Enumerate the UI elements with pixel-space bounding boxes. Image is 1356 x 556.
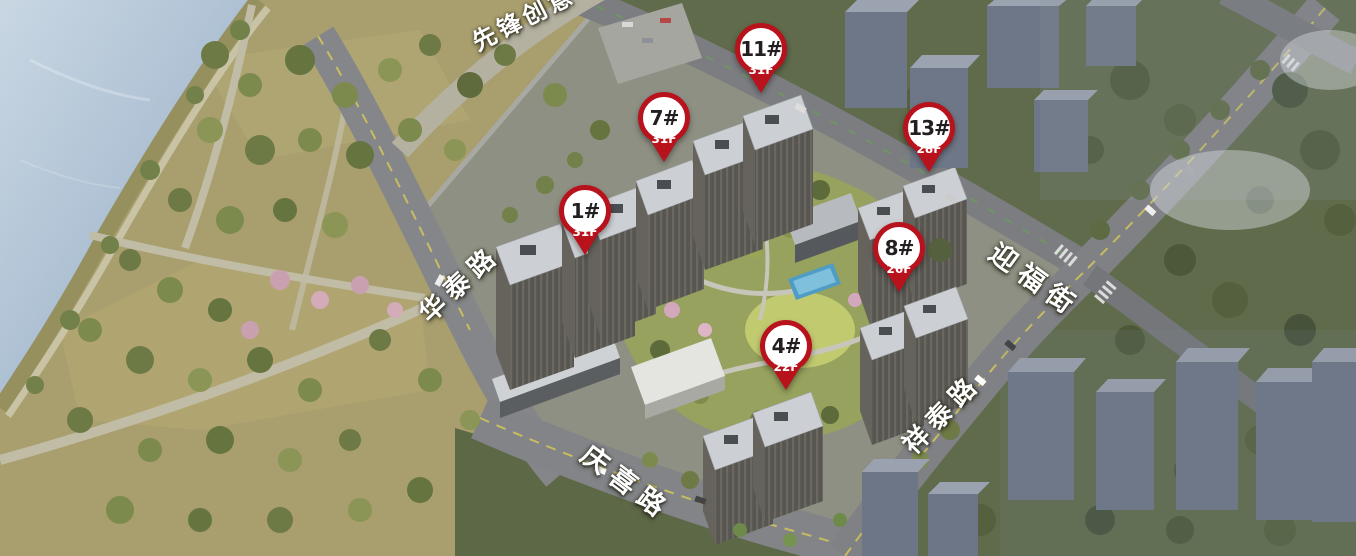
marker-floors: 31F xyxy=(557,225,613,239)
aerial-site-rendering xyxy=(0,0,1356,556)
marker-floors: 31F xyxy=(636,132,692,146)
marker-floors: 26F xyxy=(871,262,927,276)
marker-number: 13# xyxy=(908,116,950,140)
marker-number: 1# xyxy=(571,199,600,223)
marker-floors: 31F xyxy=(733,63,789,77)
marker-floors: 28F xyxy=(901,142,957,156)
stage: 先锋创意 华泰路 迎福街 祥泰路 庆喜路 1# 31F 4# 22F 7# 31… xyxy=(0,0,1356,556)
marker-floors: 22F xyxy=(758,360,814,374)
marker-number: 7# xyxy=(650,106,679,130)
marker-number: 8# xyxy=(885,236,914,260)
marker-number: 4# xyxy=(772,334,801,358)
marker-number: 11# xyxy=(740,37,782,61)
